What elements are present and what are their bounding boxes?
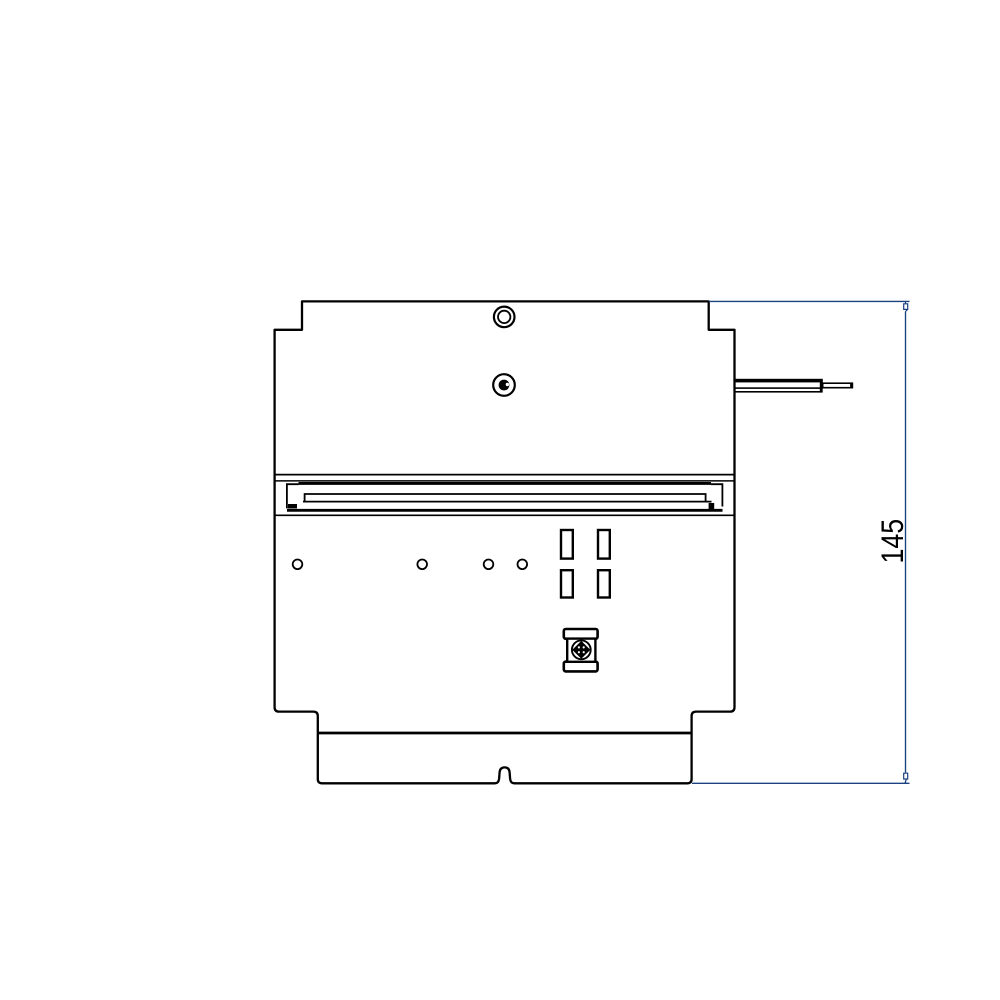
svg-text:145: 145 [875,519,911,564]
